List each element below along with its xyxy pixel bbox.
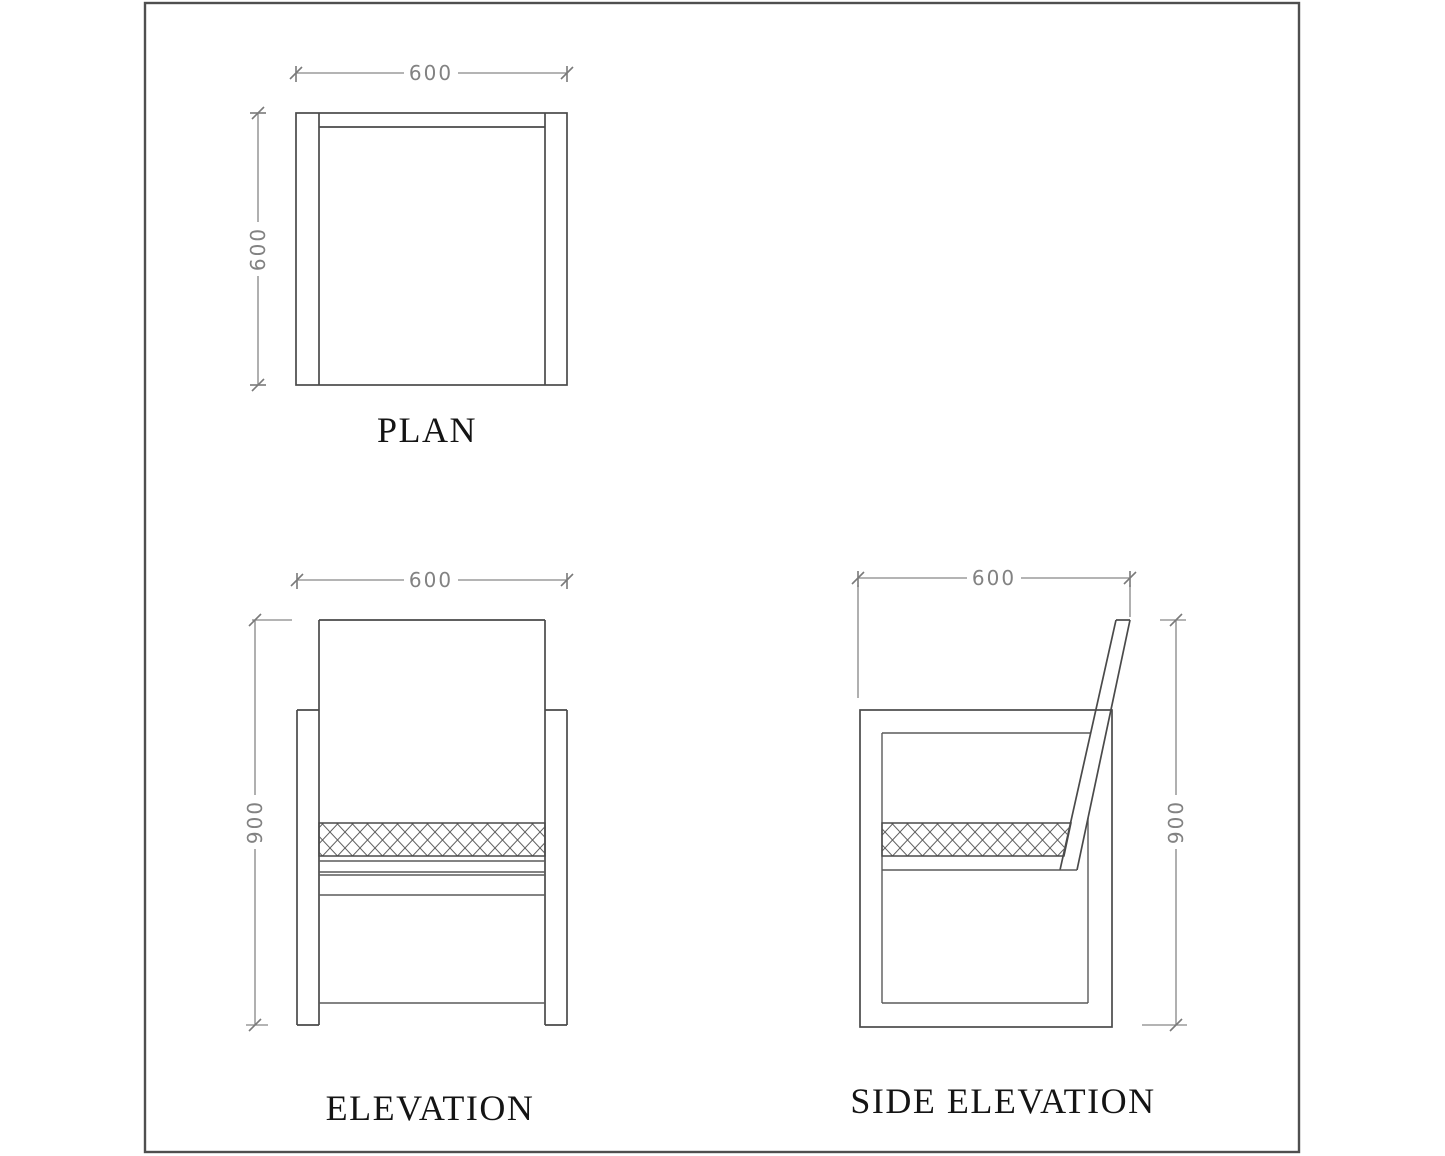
chair-technical-drawing: 600 600 PLAN	[0, 0, 1445, 1156]
elevation-height-dim-text: 900	[243, 800, 267, 844]
plan-view-label: PLAN	[377, 410, 477, 450]
elevation-width-dim-text: 600	[409, 568, 453, 592]
elevation-height-dimension: 900	[243, 614, 292, 1031]
plan-width-dimension: 600	[290, 61, 573, 85]
side-depth-dimension: 600	[852, 566, 1136, 698]
plan-width-dim-text: 600	[409, 61, 453, 85]
plan-seat-outline	[296, 113, 567, 385]
plan-depth-dimension: 600	[246, 107, 270, 391]
elevation-view-label: ELEVATION	[326, 1088, 535, 1128]
plan-view: 600 600 PLAN	[246, 61, 573, 450]
plan-depth-dim-text: 600	[246, 227, 270, 271]
side-height-dimension: 900	[1142, 614, 1188, 1031]
side-seat-cushion-hatch	[882, 823, 1071, 856]
side-depth-dim-text: 600	[972, 566, 1016, 590]
elevation-seat-cushion-hatch	[319, 823, 545, 856]
side-elevation-view: 600 900 SIDE ELEVATION	[850, 566, 1188, 1121]
side-backrest-rear-edge	[1077, 620, 1130, 870]
side-height-dim-text: 900	[1164, 800, 1188, 844]
elevation-width-dimension: 600	[291, 568, 573, 592]
cad-drawing-page: 600 600 PLAN	[0, 0, 1445, 1156]
side-elevation-view-label: SIDE ELEVATION	[850, 1081, 1155, 1121]
elevation-view: 600 900 ELEVATION	[243, 568, 573, 1128]
side-outer-frame	[860, 710, 1112, 1027]
